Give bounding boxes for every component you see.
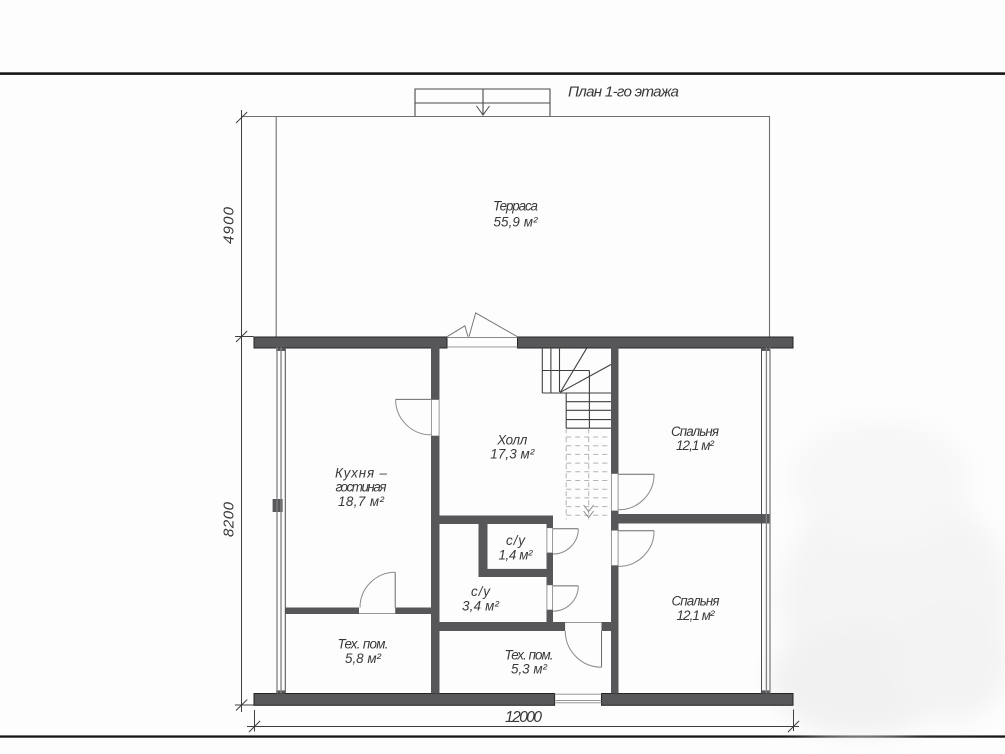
svg-text:55,9 м²: 55,9 м² [494,214,539,229]
svg-text:18,7 м²: 18,7 м² [338,494,385,509]
svg-text:3,4 м²: 3,4 м² [462,598,500,613]
svg-text:с/у: с/у [506,533,526,548]
svg-text:Тех. пом.: Тех. пом. [338,637,389,652]
svg-text:Тех. пом.: Тех. пом. [505,647,554,662]
svg-text:Холл: Холл [496,432,527,447]
svg-text:5,8 м²: 5,8 м² [345,651,382,666]
svg-text:12000: 12000 [505,709,542,726]
svg-text:План 1-го этажа: План 1-го этажа [568,84,679,101]
svg-text:4900: 4900 [221,206,238,244]
svg-text:17,3 м²: 17,3 м² [490,447,535,462]
svg-text:Терраса: Терраса [493,199,538,214]
svg-text:с/у: с/у [471,584,491,599]
svg-text:Спальня: Спальня [672,594,720,609]
svg-text:5,3 м²: 5,3 м² [511,662,548,677]
svg-text:гостиная: гостиная [336,480,387,495]
svg-text:12,1 м²: 12,1 м² [677,608,716,623]
svg-text:Спальня: Спальня [671,424,719,439]
svg-text:1,4 м²: 1,4 м² [499,547,534,562]
svg-text:8200: 8200 [221,501,238,537]
svg-text:12,1 м²: 12,1 м² [676,438,715,453]
svg-text:Кухня –: Кухня – [335,466,388,481]
